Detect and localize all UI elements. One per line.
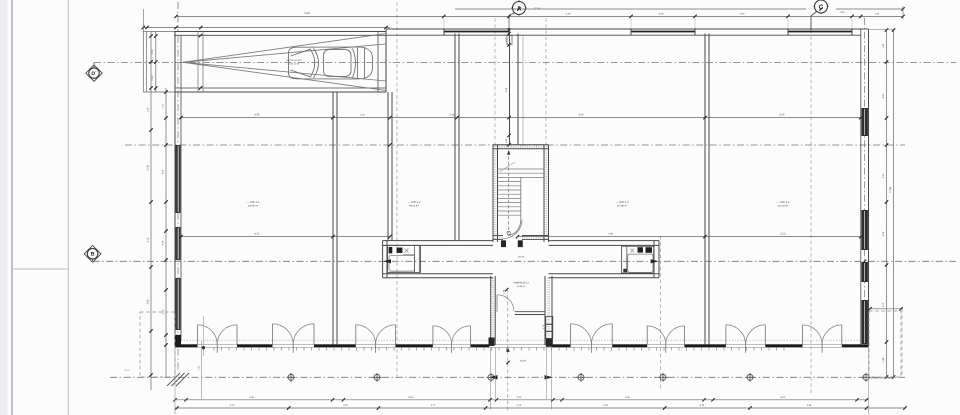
svg-text:8.25: 8.25: [780, 114, 785, 117]
svg-text:1.45: 1.45: [882, 43, 885, 48]
svg-text:2.30: 2.30: [151, 49, 154, 54]
svg-text:4.77: 4.77: [431, 404, 436, 407]
svg-text:1.00: 1.00: [162, 103, 165, 108]
svg-text:4.75: 4.75: [699, 404, 704, 407]
svg-text:4.75: 4.75: [343, 404, 348, 407]
svg-text:1.45: 1.45: [147, 107, 150, 112]
svg-text:ABSTELLPLATZ: ABSTELLPLATZ: [286, 59, 302, 62]
svg-text:5.15: 5.15: [147, 237, 150, 242]
svg-text:7.08: 7.08: [450, 114, 455, 117]
svg-text:12.08 m²: 12.08 m²: [517, 285, 526, 288]
svg-text:8.55: 8.55: [255, 114, 260, 117]
svg-text:3.65: 3.65: [162, 169, 165, 174]
svg-text:9.48: 9.48: [304, 12, 310, 15]
svg-text:3.08: 3.08: [162, 309, 165, 314]
svg-text:D´: D´: [91, 71, 97, 77]
svg-text:B: B: [91, 252, 95, 258]
svg-text:3.15: 3.15: [517, 404, 522, 407]
svg-text:4.45: 4.45: [625, 396, 630, 399]
svg-text:2.26: 2.26: [162, 240, 165, 245]
svg-text:3.10: 3.10: [882, 302, 885, 307]
svg-text:8.55: 8.55: [409, 396, 414, 399]
svg-text:8.55: 8.55: [255, 233, 260, 236]
svg-text:9.81: 9.81: [609, 233, 614, 236]
svg-text:112.42 m²: 112.42 m²: [778, 205, 789, 208]
svg-text:TERR.: TERR.: [124, 369, 130, 372]
svg-text:4.30: 4.30: [566, 12, 571, 15]
svg-text:2.40: 2.40: [360, 114, 365, 117]
svg-text:8.25: 8.25: [781, 396, 786, 399]
svg-text:3.38: 3.38: [659, 12, 664, 15]
svg-text:8.23: 8.23: [781, 233, 786, 236]
svg-text:1.48: 1.48: [882, 357, 885, 362]
svg-text:1.90: 1.90: [198, 365, 201, 370]
svg-text:117.86 m²: 117.86 m²: [617, 205, 628, 208]
svg-text:2.30: 2.30: [840, 11, 845, 14]
svg-text:4.35: 4.35: [249, 396, 254, 399]
svg-text:17.36: 17.36: [889, 186, 892, 193]
svg-text:3.30: 3.30: [882, 173, 885, 178]
svg-text:2.40: 2.40: [517, 396, 522, 399]
svg-text:3.08: 3.08: [882, 231, 885, 236]
svg-text:5.00 x 2.30: 5.00 x 2.30: [289, 62, 300, 65]
svg-text:9.90: 9.90: [579, 114, 584, 117]
svg-text:4.90: 4.90: [740, 12, 745, 15]
svg-text:4.70: 4.70: [603, 404, 608, 407]
svg-text:4.80: 4.80: [882, 93, 885, 98]
svg-text:4.70: 4.70: [230, 404, 235, 407]
svg-text:2.30: 2.30: [151, 75, 154, 80]
svg-text:VORRAUM 5.2: VORRAUM 5.2: [513, 282, 529, 285]
svg-text:4.48: 4.48: [807, 404, 812, 407]
svg-text:16.42: 16.42: [518, 256, 524, 259]
svg-text:118.06 m²: 118.06 m²: [248, 205, 259, 208]
svg-text:C: C: [819, 4, 824, 11]
svg-text:17.36: 17.36: [147, 164, 150, 171]
svg-text:98.55 m²: 98.55 m²: [409, 205, 419, 208]
svg-text:3.50: 3.50: [147, 299, 150, 304]
svg-text:±0.00: ±0.00: [520, 360, 527, 363]
